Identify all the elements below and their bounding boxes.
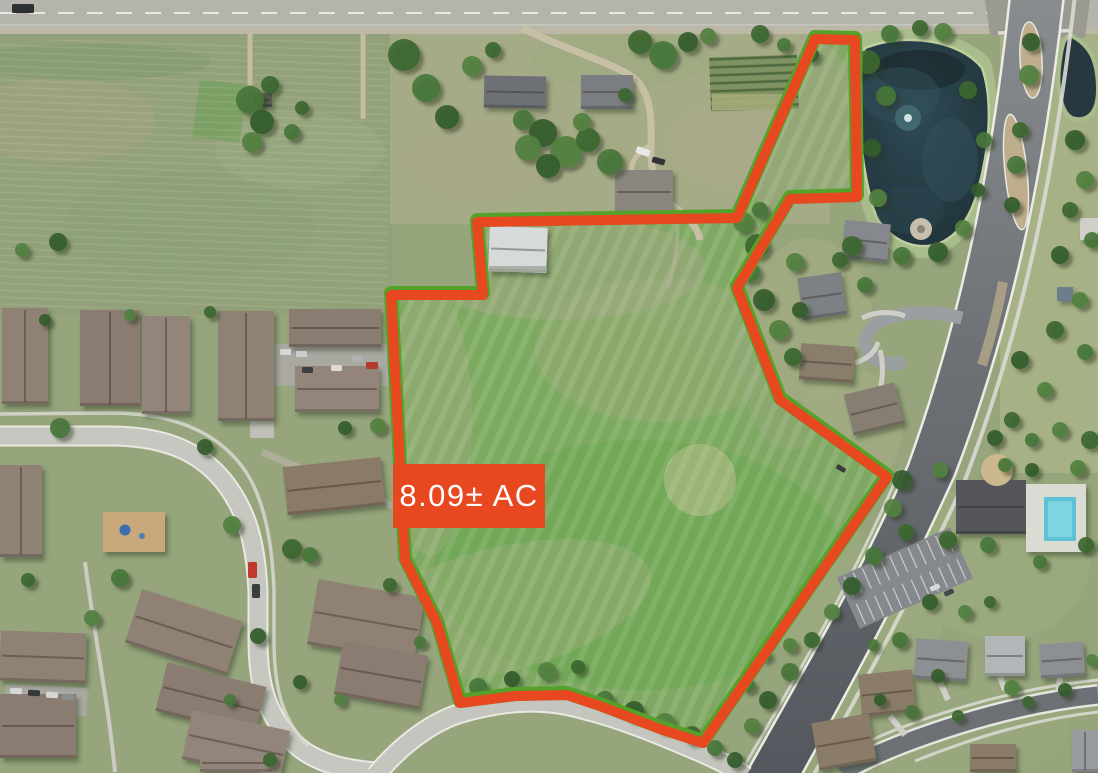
play-equipment bbox=[120, 525, 131, 536]
aerial-property-map: 8.09± AC bbox=[0, 0, 1098, 773]
area-label-text: 8.09± AC bbox=[399, 478, 538, 514]
aerial-photo bbox=[0, 0, 1098, 773]
pool-water bbox=[1048, 501, 1072, 537]
area-label: 8.09± AC bbox=[393, 464, 545, 528]
left-field bbox=[0, 30, 392, 315]
playground bbox=[103, 512, 165, 552]
play-structure bbox=[1057, 287, 1073, 301]
